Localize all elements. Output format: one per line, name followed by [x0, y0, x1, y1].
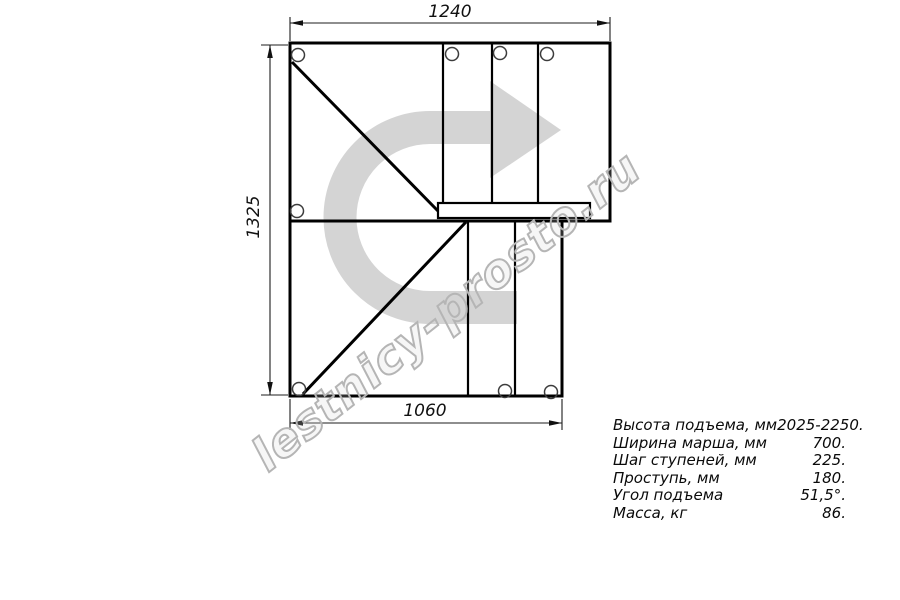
u-turn-right-arrow-icon — [340, 81, 561, 308]
spec-label: Масса, кг — [613, 505, 687, 523]
spec-value: 86. — [822, 505, 846, 523]
dimension-bottom-value: 1060 — [365, 402, 485, 420]
dimension-top-value: 1240 — [390, 3, 510, 21]
dimension-lines — [261, 17, 610, 430]
spec-label: Ширина марша, мм — [613, 435, 767, 453]
spec-row-tread: Проступь, мм 180. — [613, 470, 846, 488]
spec-value: 180. — [813, 470, 846, 488]
spec-row-angle: Угол подъема 51,5°. — [613, 487, 846, 505]
staircase-drawing-canvas: 1240 1325 1060 Высота подъема, мм 2025-2… — [0, 0, 900, 600]
spec-value: 225. — [813, 452, 846, 470]
spec-label: Шаг ступеней, мм — [613, 452, 757, 470]
landing-step-plate — [438, 203, 590, 218]
spec-row-flight-width: Ширина марша, мм 700. — [613, 435, 846, 453]
spec-label: Угол подъема — [613, 487, 723, 505]
spec-row-mass: Масса, кг 86. — [613, 505, 846, 523]
spec-value: 51,5°. — [800, 487, 846, 505]
spec-label: Высота подъема, мм — [613, 417, 777, 435]
stair-outline — [290, 43, 610, 396]
spec-value: 700. — [813, 435, 846, 453]
spec-table: Высота подъема, мм 2025-2250. Ширина мар… — [613, 417, 846, 523]
spec-row-height: Высота подъема, мм 2025-2250. — [613, 417, 846, 435]
dimension-left-value: 1325 — [245, 157, 263, 277]
spec-row-step-pitch: Шаг ступеней, мм 225. — [613, 452, 846, 470]
dimension-arrowheads — [267, 20, 610, 426]
spec-value: 2025-2250. — [777, 417, 864, 435]
spec-label: Проступь, мм — [613, 470, 720, 488]
